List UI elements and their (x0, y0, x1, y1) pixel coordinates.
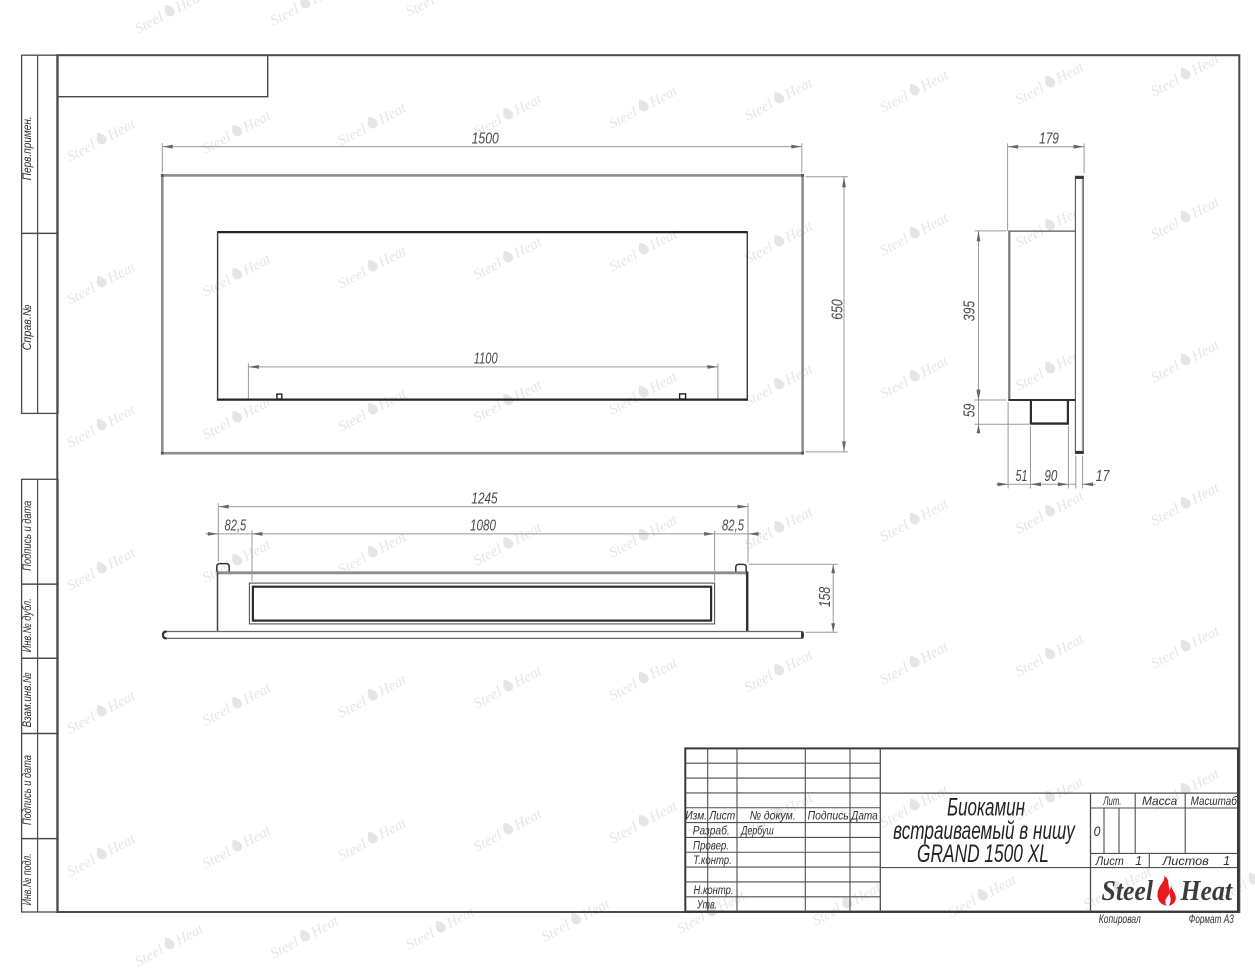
svg-text:Н.контр.: Н.контр. (694, 883, 734, 897)
svg-text:Перв.примен.: Перв.примен. (22, 116, 34, 180)
svg-text:Подпись и дата: Подпись и дата (22, 755, 34, 825)
svg-text:Масса: Масса (1142, 794, 1177, 808)
svg-text:0: 0 (1094, 824, 1101, 839)
svg-text:Лист: Лист (708, 808, 735, 822)
svg-text:1245: 1245 (471, 490, 497, 507)
svg-text:Подпись и дата: Подпись и дата (22, 501, 34, 571)
svg-text:Листов: Листов (1162, 854, 1210, 868)
svg-text:Дербуш: Дербуш (740, 823, 774, 837)
svg-text:82,5: 82,5 (225, 518, 247, 535)
svg-text:1: 1 (1223, 854, 1230, 868)
svg-text:Копировал: Копировал (1099, 912, 1141, 926)
svg-text:Масштаб: Масштаб (1191, 794, 1238, 808)
svg-text:Т.контр.: Т.контр. (693, 853, 732, 867)
svg-text:650: 650 (830, 299, 847, 320)
svg-text:GRAND 1500 XL: GRAND 1500 XL (917, 840, 1049, 868)
svg-text:51: 51 (1016, 468, 1028, 485)
svg-text:№ докум.: № докум. (750, 808, 796, 822)
svg-text:1080: 1080 (470, 518, 496, 535)
svg-text:Справ.№: Справ.№ (22, 304, 34, 351)
svg-text:Провер.: Провер. (693, 838, 729, 852)
svg-text:Утв.: Утв. (696, 898, 717, 912)
svg-text:Изм.: Изм. (685, 808, 707, 822)
svg-text:179: 179 (1039, 130, 1059, 147)
svg-text:17: 17 (1096, 468, 1111, 485)
svg-text:Подпись: Подпись (808, 808, 849, 822)
svg-text:Лист: Лист (1095, 854, 1124, 868)
svg-text:82,5: 82,5 (722, 518, 744, 535)
svg-text:158: 158 (817, 587, 834, 608)
svg-text:Дата: Дата (850, 808, 878, 822)
svg-text:Heat: Heat (1180, 876, 1234, 907)
svg-text:Формат А3: Формат А3 (1189, 912, 1234, 926)
svg-text:Разраб.: Разраб. (693, 823, 730, 837)
svg-text:395: 395 (962, 301, 979, 322)
svg-text:1100: 1100 (474, 351, 498, 368)
svg-text:Steel: Steel (1102, 876, 1154, 907)
svg-text:Лит.: Лит. (1103, 794, 1122, 808)
svg-text:90: 90 (1044, 468, 1057, 485)
svg-text:59: 59 (962, 403, 979, 417)
svg-text:1500: 1500 (472, 130, 499, 147)
svg-text:1: 1 (1135, 854, 1142, 868)
svg-text:Инв.№ подл.: Инв.№ подл. (22, 853, 34, 905)
svg-text:Взам.инв.№: Взам.инв.№ (22, 672, 34, 727)
svg-text:Инв.№ дубл.: Инв.№ дубл. (22, 598, 34, 652)
